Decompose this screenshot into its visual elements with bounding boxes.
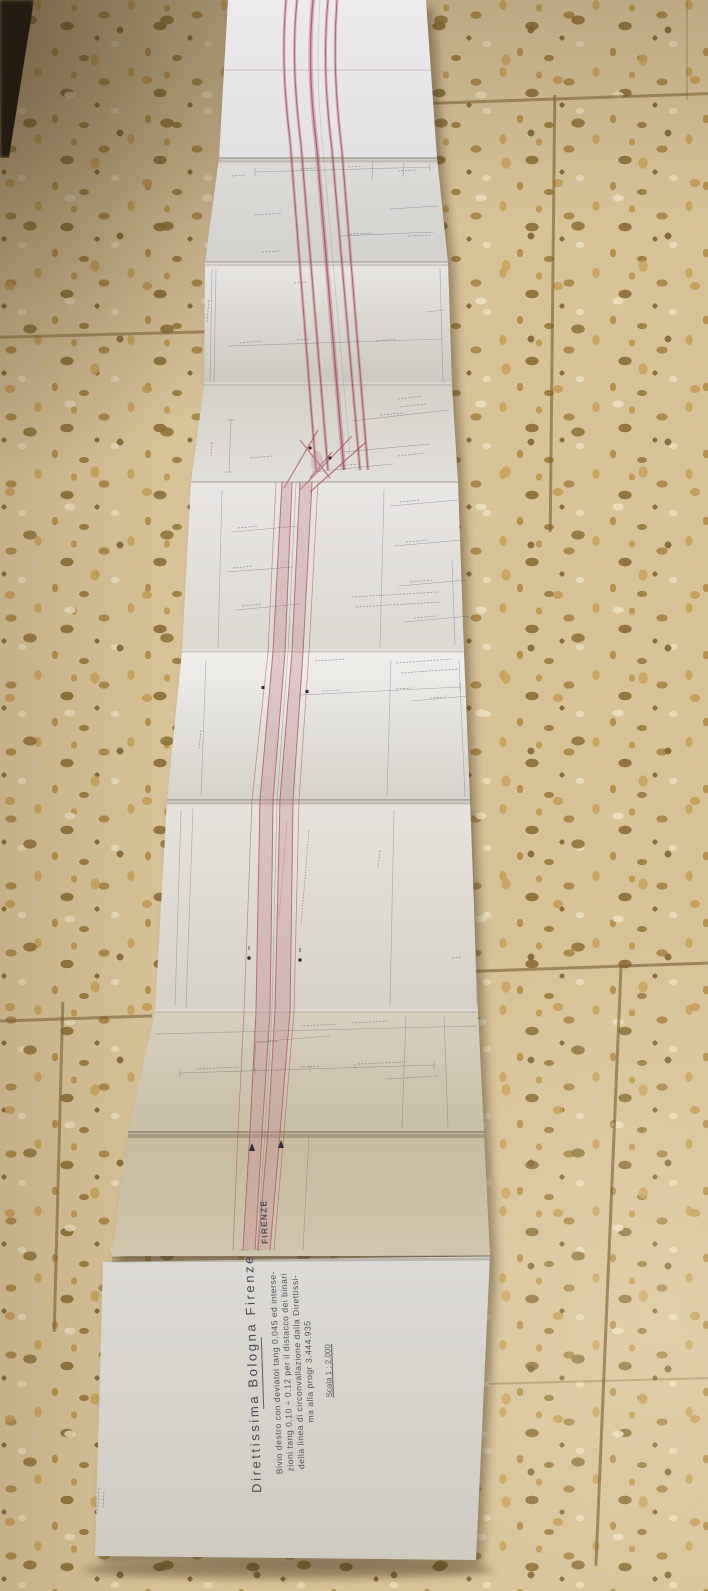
paper-panel-5 [182,482,464,652]
title-underline [261,1337,265,1409]
photo-scene: FIRENZE Direttissima Bologna Firenze Biv… [0,0,708,1591]
paper-panel-1 [219,0,437,158]
paper-panel-7 [155,800,478,1012]
title-block: Direttissima Bologna Firenze Bivio destr… [240,1235,349,1508]
plan-strip [0,0,708,1591]
plan-scale-note: Scala 1 : 2.000 [319,1236,337,1506]
paper-panel-6 [167,652,470,800]
